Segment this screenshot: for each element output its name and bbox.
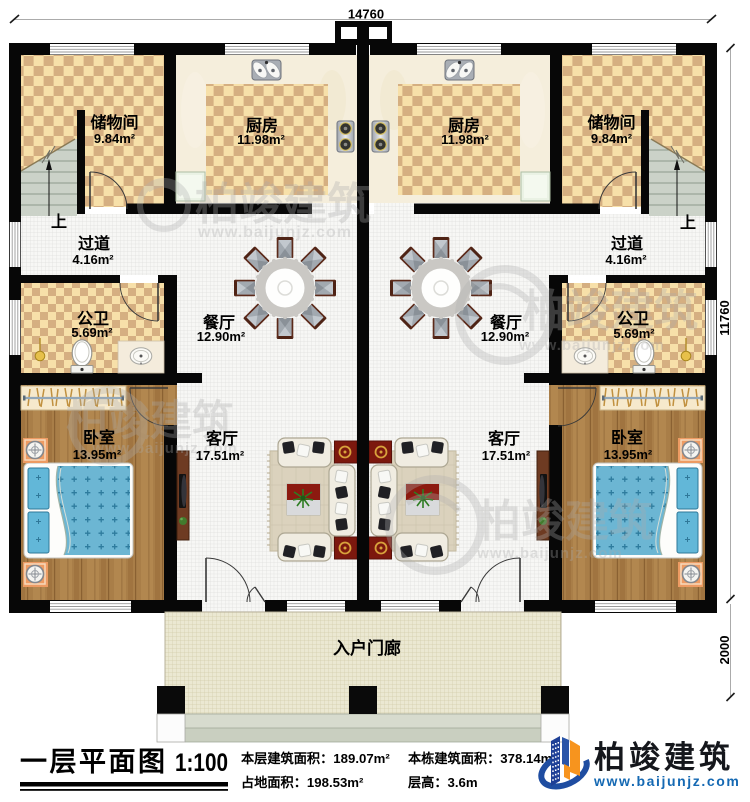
svg-text:9.84m²: 9.84m²: [94, 131, 136, 146]
svg-text:卧室: 卧室: [83, 428, 115, 447]
svg-text:12.90m²: 12.90m²: [481, 329, 530, 344]
svg-text:17.51m²: 17.51m²: [196, 448, 245, 463]
svg-text:柏竣建筑: 柏竣建筑: [195, 180, 371, 229]
svg-text:4.16m²: 4.16m²: [72, 252, 114, 267]
svg-text:13.95m²: 13.95m²: [73, 447, 122, 462]
svg-text:9.84m²: 9.84m²: [591, 131, 633, 146]
svg-text:柏竣建筑: 柏竣建筑: [477, 497, 653, 546]
svg-text:17.51m²: 17.51m²: [482, 448, 531, 463]
svg-text:2000: 2000: [717, 636, 732, 665]
svg-text:13.95m²: 13.95m²: [604, 447, 653, 462]
svg-text:过道: 过道: [611, 234, 643, 253]
svg-text:过道: 过道: [78, 234, 110, 253]
svg-text:客厅: 客厅: [488, 429, 520, 448]
svg-text:12.90m²: 12.90m²: [197, 329, 246, 344]
svg-text:11.98m²: 11.98m²: [237, 132, 285, 147]
svg-text:www.baijunjz.com: www.baijunjz.com: [197, 224, 352, 241]
svg-text:4.16m²: 4.16m²: [605, 252, 647, 267]
svg-text:11760: 11760: [717, 300, 732, 335]
svg-text:www.baijunjz.com: www.baijunjz.com: [476, 545, 622, 562]
svg-text:上: 上: [51, 213, 67, 231]
svg-text:5.69m²: 5.69m²: [613, 326, 655, 341]
svg-text:1:100: 1:100: [175, 749, 228, 777]
svg-text:柏竣建筑: 柏竣建筑: [594, 740, 734, 775]
svg-text:卧室: 卧室: [611, 428, 643, 447]
svg-text:客厅: 客厅: [206, 429, 238, 448]
svg-text:占地面积：198.53m²: 占地面积：198.53m²: [241, 774, 364, 790]
svg-text:上: 上: [680, 214, 696, 232]
svg-text:柏竣建筑: 柏竣建筑: [522, 287, 698, 336]
svg-text:一层平面图: 一层平面图: [20, 747, 168, 777]
svg-text:5.69m²: 5.69m²: [71, 325, 113, 340]
svg-text:本栋建筑面积：378.14m²: 本栋建筑面积：378.14m²: [408, 750, 557, 766]
svg-text:入户门廊: 入户门廊: [333, 638, 401, 658]
svg-text:11.98m²: 11.98m²: [441, 132, 489, 147]
svg-text:层高：3.6m: 层高：3.6m: [408, 774, 478, 790]
svg-text:储物间: 储物间: [586, 113, 635, 132]
svg-text:14760: 14760: [348, 7, 384, 22]
svg-text:储物间: 储物间: [89, 113, 138, 132]
svg-text:本层建筑面积：189.07m²: 本层建筑面积：189.07m²: [241, 750, 390, 766]
svg-text:www.baijunjz.com: www.baijunjz.com: [593, 773, 740, 789]
